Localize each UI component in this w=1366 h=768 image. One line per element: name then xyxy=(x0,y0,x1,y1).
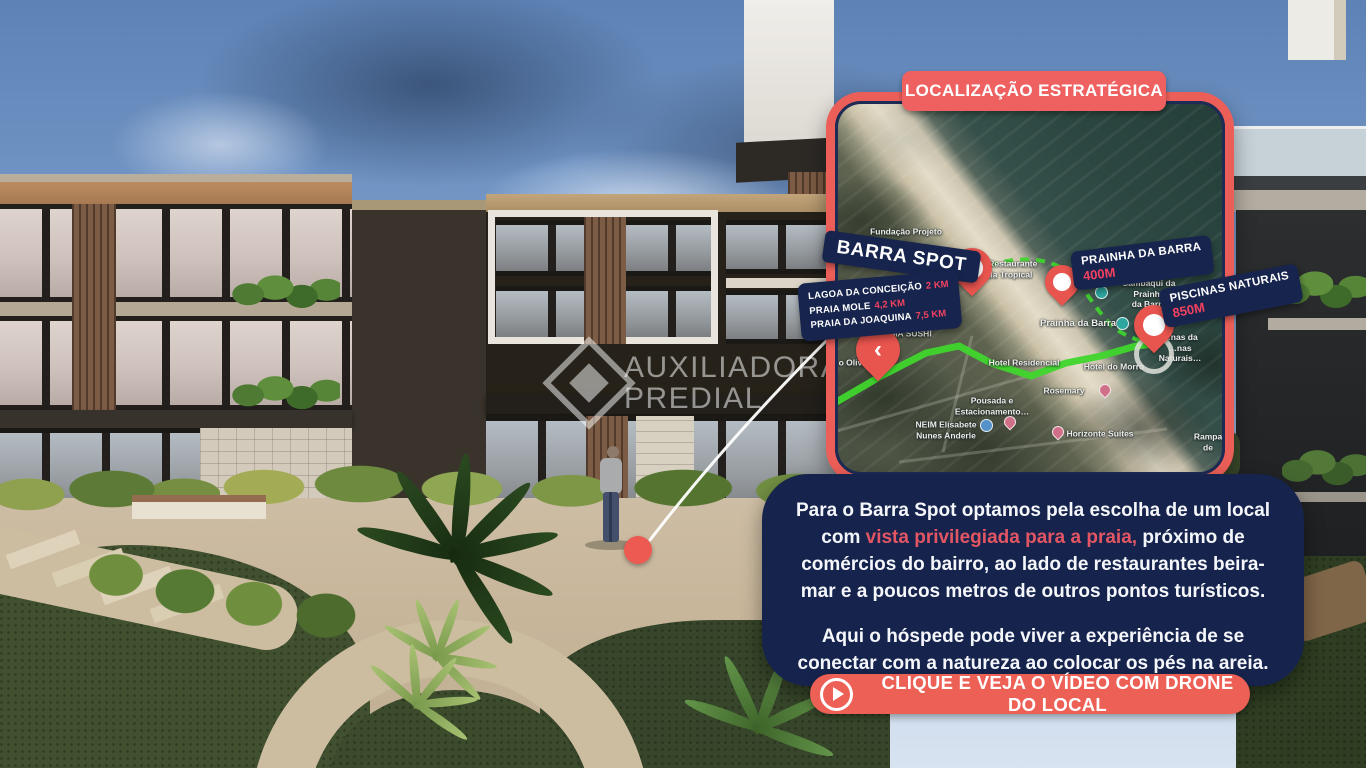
person-head xyxy=(607,446,619,458)
hedge-row xyxy=(80,548,380,638)
rooftop-glass-railing xyxy=(1230,126,1366,181)
watermark-line1: AUXILIADORA xyxy=(624,352,842,383)
map-poi-label: NEIM Elisabete Nunes Anderle xyxy=(916,419,977,440)
balcony-slab xyxy=(1268,318,1366,330)
location-badge: LOCALIZAÇÃO ESTRATÉGICA xyxy=(902,71,1166,111)
p1-highlight: vista privilegiada para a praia, xyxy=(866,527,1137,548)
person-legs xyxy=(603,492,619,542)
info-panel: Para o Barra Spot optamos pela escolha d… xyxy=(762,474,1304,686)
map-poi-label: Horizonte Suítes xyxy=(1066,429,1133,440)
parapet-cap xyxy=(0,174,352,182)
watermark-text: AUXILIADORA PREDIAL xyxy=(624,352,842,414)
balcony-plants xyxy=(1282,440,1366,496)
school-icon xyxy=(980,419,993,432)
map-poi-label: Fundação Projeto xyxy=(870,227,942,238)
rooftop-elevator-block xyxy=(1288,0,1346,60)
map-poi-label: Hotel do Morro xyxy=(1084,362,1144,373)
map-poi-label: Hotel Residencial xyxy=(989,358,1060,369)
map-poi-label: Prainha da Barra xyxy=(1040,318,1116,330)
map-poi-label: Pousada e Estacionamento… xyxy=(955,395,1029,416)
building-right-band xyxy=(1230,190,1366,212)
white-building xyxy=(744,0,834,148)
play-icon xyxy=(820,678,853,711)
paragraph-1: Para o Barra Spot optamos pela escolha d… xyxy=(784,498,1282,606)
watermark-line2: PREDIAL xyxy=(624,383,842,414)
brick-band xyxy=(0,182,352,204)
stone-wall-low xyxy=(132,495,266,519)
video-cta-button[interactable]: CLIQUE E VEJA O VÍDEO COM DRONE DO LOCAL xyxy=(810,674,1250,714)
cta-label: CLIQUE E VEJA O VÍDEO COM DRONE DO LOCAL xyxy=(865,672,1250,716)
real-estate-flyer: AUXILIADORA PREDIAL Fund xyxy=(0,0,1366,768)
place-distance: 7,5 KM xyxy=(915,308,947,325)
map-poi-label: Rampa de xyxy=(1194,431,1222,452)
place-distance: 2 KM xyxy=(925,278,949,295)
wood-slat-column xyxy=(72,204,116,410)
canopy xyxy=(0,410,352,428)
map-poi-label: Rosemary xyxy=(1043,386,1084,397)
location-dot xyxy=(624,536,652,564)
p2-text: Aqui o hóspede pode viver a experiência … xyxy=(822,626,1244,647)
p2-bold: conectar com a natureza ao colocar os pé… xyxy=(798,653,1269,674)
camera-icon xyxy=(1116,317,1129,330)
person-figure xyxy=(598,446,630,548)
person-torso xyxy=(600,458,622,494)
paragraph-2: Aqui o hóspede pode viver a experiência … xyxy=(784,624,1282,678)
wood-slat-column xyxy=(584,217,626,344)
balcony-plants xyxy=(228,270,340,314)
